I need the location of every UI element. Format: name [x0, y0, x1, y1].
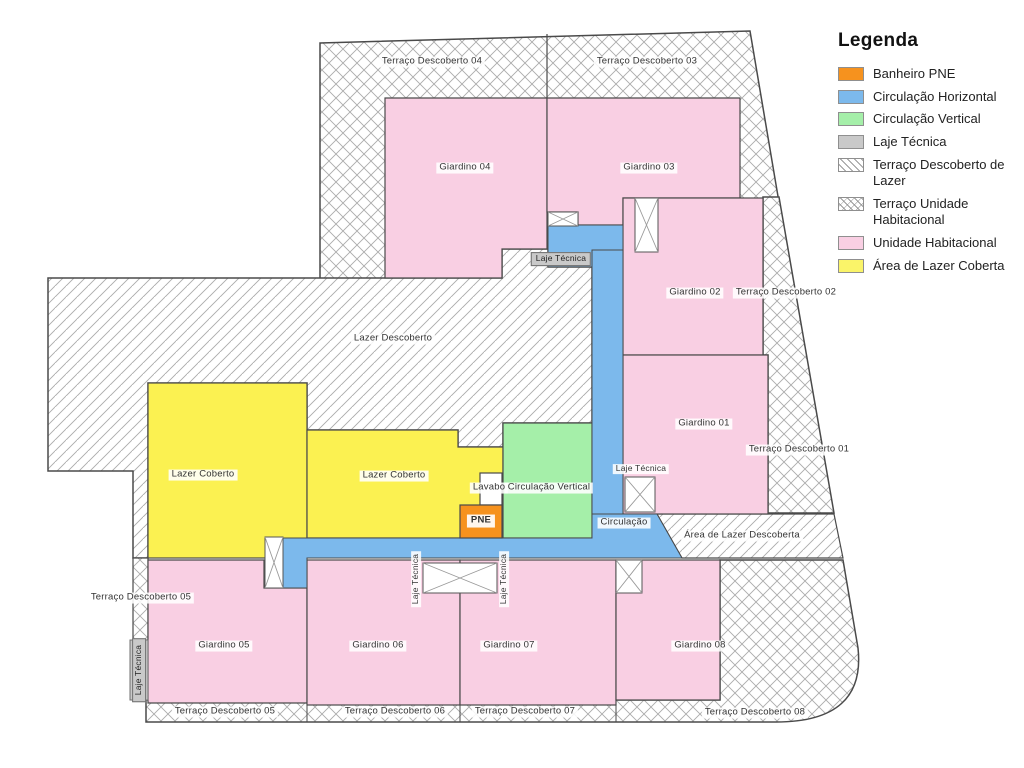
legend-item-circulacao-horizontal: Circulação Horizontal	[838, 89, 1020, 106]
region-circulacao-column	[592, 250, 623, 515]
legend-item-label: Circulação Vertical	[873, 111, 981, 128]
label-lazer-descoberto: Lazer Descoberto	[351, 334, 435, 345]
label-circulacao: Circulação	[598, 518, 651, 529]
floor-plan-page: Terraço Descoberto 04 Terraço Descoberto…	[0, 0, 1024, 768]
legend-item-label: Área de Lazer Coberta	[873, 258, 1005, 275]
legend-item-label: Circulação Horizontal	[873, 89, 997, 106]
legend-item-area-de-lazer-coberta: Área de Lazer Coberta	[838, 258, 1020, 275]
legend-item-banheiro-pne: Banheiro PNE	[838, 66, 1020, 83]
region-circulacao-vertical	[503, 423, 592, 538]
label-lazer-coberto-left: Lazer Coberto	[169, 470, 238, 481]
label-laje-tecnica-center-left: Laje Técnica	[411, 551, 421, 607]
label-giardino-04: Giardino 04	[436, 163, 493, 174]
legend-title: Legenda	[838, 30, 1020, 52]
label-terraco-descoberto-04: Terraço Descoberto 04	[379, 57, 485, 68]
legend-item-circulacao-vertical: Circulação Vertical	[838, 111, 1020, 128]
legend-item-terraco-unidade-habitacional: Terraço Unidade Habitacional	[838, 196, 1020, 229]
legend-item-label: Terraço Descoberto de Lazer	[873, 157, 1020, 190]
legend-item-label: Unidade Habitacional	[873, 235, 997, 252]
legend-swatch-unidade-habitacional	[838, 236, 864, 250]
label-terraco-descoberto-02: Terraço Descoberto 02	[733, 288, 839, 299]
legend-item-unidade-habitacional: Unidade Habitacional	[838, 235, 1020, 252]
legend-item-laje-tecnica: Laje Técnica	[838, 134, 1020, 151]
label-laje-tecnica-center-right: Laje Técnica	[499, 551, 509, 607]
legend-swatch-area-de-lazer-coberta	[838, 259, 864, 273]
label-lavabo: Lavabo	[470, 483, 508, 494]
legend-swatch-banheiro-pne	[838, 67, 864, 81]
label-giardino-01: Giardino 01	[675, 419, 732, 430]
label-terraco-descoberto-07: Terraço Descoberto 07	[472, 707, 578, 718]
legend-swatch-terraco-unidade-habitacional	[838, 197, 864, 211]
label-giardino-05: Giardino 05	[195, 641, 252, 652]
label-giardino-06: Giardino 06	[349, 641, 406, 652]
label-circulacao-vertical: Circulação Vertical	[505, 483, 593, 494]
label-giardino-07: Giardino 07	[480, 641, 537, 652]
label-area-de-lazer-descoberta: Área de Lazer Descoberta	[681, 531, 803, 542]
label-laje-tecnica-right: Laje Técnica	[613, 464, 669, 474]
label-terraco-descoberto-08: Terraço Descoberto 08	[702, 708, 808, 719]
label-pne: PNE	[467, 515, 495, 528]
label-lazer-coberto-right: Lazer Coberto	[360, 471, 429, 482]
label-terraco-descoberto-05-side: Terraço Descoberto 05	[88, 593, 194, 604]
label-terraco-descoberto-03: Terraço Descoberto 03	[594, 57, 700, 68]
label-laje-tecnica-top: Laje Técnica	[531, 252, 591, 266]
legend-item-label: Terraço Unidade Habitacional	[873, 196, 1020, 229]
legend-swatch-circulacao-vertical	[838, 112, 864, 126]
label-terraco-descoberto-01: Terraço Descoberto 01	[746, 445, 852, 456]
legend-item-label: Banheiro PNE	[873, 66, 955, 83]
label-terraco-descoberto-05: Terraço Descoberto 05	[172, 707, 278, 718]
legend: Legenda Banheiro PNE Circulação Horizont…	[838, 30, 1020, 280]
label-giardino-03: Giardino 03	[620, 163, 677, 174]
region-terraco-descoberto-right-band	[763, 197, 834, 513]
legend-swatch-laje-tecnica	[838, 135, 864, 149]
legend-swatch-circulacao-horizontal	[838, 90, 864, 104]
label-giardino-08: Giardino 08	[671, 641, 728, 652]
legend-swatch-terraco-descoberto-de-lazer	[838, 158, 864, 172]
legend-item-terraco-descoberto-de-lazer: Terraço Descoberto de Lazer	[838, 157, 1020, 190]
label-giardino-02: Giardino 02	[666, 288, 723, 299]
legend-item-label: Laje Técnica	[873, 134, 946, 151]
label-terraco-descoberto-06: Terraço Descoberto 06	[342, 707, 448, 718]
label-laje-tecnica-left-vertical: Laje Técnica	[132, 638, 146, 702]
